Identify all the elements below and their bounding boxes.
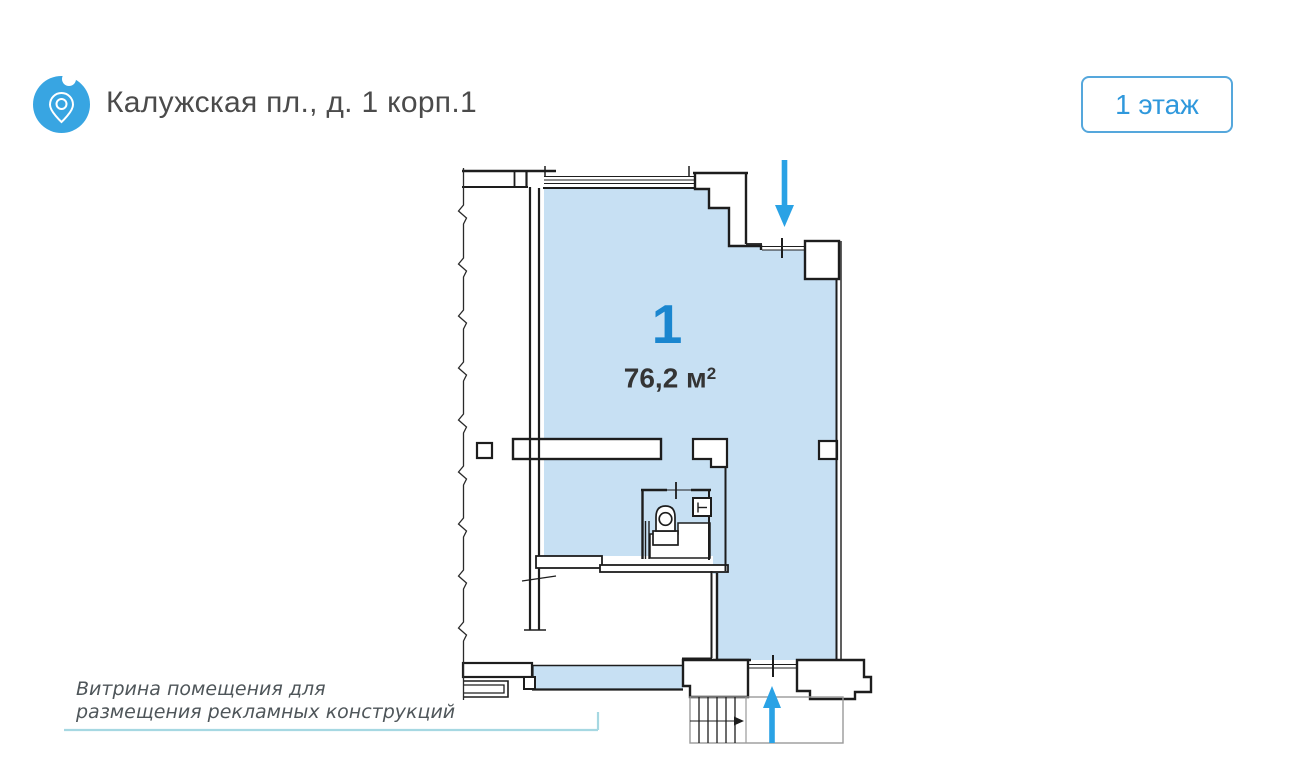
room-area-label: 76,2 м2 bbox=[584, 362, 756, 394]
location-pin-icon bbox=[33, 76, 90, 133]
wall-top-left bbox=[462, 171, 556, 188]
wall-break-line bbox=[459, 168, 467, 700]
showcase-annotation: Витрина помещения для размещения рекламн… bbox=[76, 678, 455, 724]
wall-bar bbox=[513, 439, 661, 459]
column-right-wall bbox=[819, 441, 837, 459]
column-left bbox=[477, 443, 492, 458]
entrance-block-left bbox=[683, 660, 748, 697]
room-area-superscript: 2 bbox=[707, 364, 716, 383]
wall-right bbox=[837, 241, 842, 662]
toilet-icon bbox=[653, 506, 678, 545]
entrance-block-right bbox=[797, 660, 871, 699]
arrow-right-icon bbox=[734, 717, 744, 726]
showcase-annotation-line2: размещения рекламных конструкций bbox=[76, 701, 455, 724]
page-title: Калужская пл., д. 1 корп.1 bbox=[106, 86, 477, 120]
showcase-strip bbox=[532, 666, 683, 689]
walls-bottom-left bbox=[463, 663, 535, 697]
showcase-annotation-line1: Витрина помещения для bbox=[76, 678, 455, 701]
room-number-label: 1 bbox=[636, 292, 698, 358]
arrow-down-icon bbox=[775, 160, 794, 227]
pillar-top-right bbox=[805, 241, 839, 279]
window-band bbox=[543, 166, 695, 188]
arrow-up-icon bbox=[763, 686, 781, 743]
sink-icon bbox=[693, 498, 711, 516]
room-area-value: 76,2 м bbox=[624, 362, 707, 393]
floor-selector-button[interactable]: 1 этаж bbox=[1081, 76, 1233, 133]
